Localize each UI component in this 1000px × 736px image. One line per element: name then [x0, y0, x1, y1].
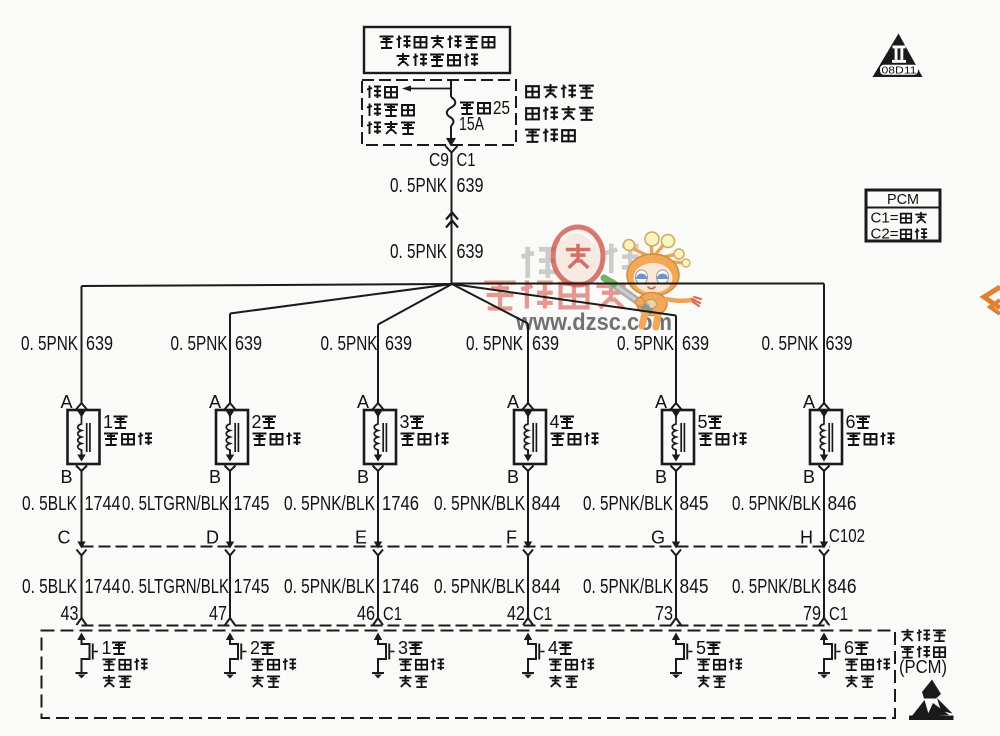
svg-text:1745: 1745	[234, 493, 270, 515]
svg-text:846: 846	[828, 576, 857, 598]
svg-text:1746: 1746	[382, 493, 419, 515]
svg-text:0. 5BLK: 0. 5BLK	[22, 576, 78, 598]
svg-text:639: 639	[826, 333, 853, 355]
svg-text:2: 2	[250, 638, 260, 658]
svg-text:1744: 1744	[85, 576, 121, 598]
svg-text:0. 5BLK: 0. 5BLK	[22, 493, 78, 515]
svg-text:D: D	[206, 528, 219, 548]
svg-text:0. 5PNK/BLK: 0. 5PNK/BLK	[583, 493, 674, 515]
svg-text:639: 639	[385, 333, 412, 355]
svg-text:08D11: 08D11	[882, 65, 918, 76]
svg-text:844: 844	[532, 493, 561, 515]
svg-text:PCM: PCM	[887, 191, 919, 208]
svg-text:C: C	[58, 528, 71, 548]
svg-text:(PCM): (PCM)	[899, 657, 947, 677]
svg-text:0. 5LTGRN/BLK: 0. 5LTGRN/BLK	[122, 493, 229, 515]
svg-text:G: G	[651, 528, 665, 548]
svg-text:B: B	[803, 467, 815, 487]
svg-text:639: 639	[682, 333, 709, 355]
svg-text:6: 6	[844, 638, 854, 658]
svg-text:47: 47	[209, 603, 227, 625]
svg-text:1: 1	[102, 638, 112, 658]
svg-text:639: 639	[457, 175, 484, 197]
svg-text:639: 639	[86, 333, 113, 355]
svg-text:6: 6	[846, 412, 856, 432]
svg-text:0. 5PNK: 0. 5PNK	[390, 175, 448, 197]
svg-text:C1: C1	[829, 604, 848, 624]
svg-text:0. 5PNK/BLK: 0. 5PNK/BLK	[732, 576, 821, 598]
svg-text:5: 5	[698, 412, 708, 432]
svg-text:0. 5PNK/BLK: 0. 5PNK/BLK	[434, 493, 526, 515]
svg-text:0. 5PNK: 0. 5PNK	[466, 333, 524, 355]
svg-text:E: E	[355, 528, 367, 548]
svg-text:B: B	[60, 467, 72, 487]
svg-text:0. 5PNK/BLK: 0. 5PNK/BLK	[583, 576, 674, 598]
svg-text:0. 5PNK/BLK: 0. 5PNK/BLK	[732, 493, 821, 515]
svg-text:2: 2	[252, 412, 262, 432]
svg-text:B: B	[507, 467, 519, 487]
svg-text:0. 5PNK/BLK: 0. 5PNK/BLK	[434, 576, 526, 598]
svg-text:4: 4	[550, 412, 560, 432]
svg-text:4: 4	[548, 638, 558, 658]
svg-text:15A: 15A	[459, 114, 484, 134]
svg-text:0. 5PNK: 0. 5PNK	[171, 333, 229, 355]
svg-text:0. 5PNK: 0. 5PNK	[617, 333, 675, 355]
svg-text:844: 844	[532, 576, 561, 598]
svg-text:1746: 1746	[382, 576, 419, 598]
svg-text:0. 5LTGRN/BLK: 0. 5LTGRN/BLK	[122, 576, 229, 598]
svg-text:B: B	[357, 467, 369, 487]
svg-text:H: H	[800, 528, 813, 548]
svg-text:5: 5	[696, 638, 706, 658]
svg-text:1745: 1745	[234, 576, 270, 598]
svg-text:845: 845	[680, 576, 709, 598]
svg-text:0. 5PNK: 0. 5PNK	[390, 241, 448, 263]
svg-text:0. 5PNK: 0. 5PNK	[21, 333, 79, 355]
svg-text:3: 3	[398, 638, 408, 658]
svg-text:846: 846	[828, 493, 857, 515]
svg-text:73: 73	[655, 603, 673, 625]
svg-text:F: F	[506, 528, 517, 548]
svg-text:639: 639	[235, 333, 262, 355]
svg-text:42: 42	[507, 603, 525, 625]
svg-text:C102: C102	[829, 526, 865, 546]
svg-text:639: 639	[457, 241, 484, 263]
svg-text:B: B	[209, 467, 221, 487]
svg-text:0. 5PNK/BLK: 0. 5PNK/BLK	[284, 493, 376, 515]
svg-text:0. 5PNK: 0. 5PNK	[762, 333, 820, 355]
svg-text:639: 639	[532, 333, 559, 355]
svg-text:3: 3	[400, 412, 410, 432]
svg-text:79: 79	[803, 603, 821, 625]
svg-text:C1: C1	[457, 150, 476, 170]
svg-text:0. 5PNK/BLK: 0. 5PNK/BLK	[284, 576, 376, 598]
svg-text:1744: 1744	[85, 493, 121, 515]
svg-text:0. 5PNK: 0. 5PNK	[321, 333, 379, 355]
svg-text:43: 43	[61, 603, 79, 625]
svg-text:1: 1	[103, 412, 113, 432]
svg-text:B: B	[655, 467, 667, 487]
svg-text:C1: C1	[533, 604, 552, 624]
svg-text:25: 25	[493, 98, 510, 118]
svg-text:46: 46	[357, 603, 375, 625]
svg-text:845: 845	[680, 493, 709, 515]
svg-text:C2=: C2=	[871, 226, 899, 243]
svg-text:C1: C1	[383, 604, 402, 624]
svg-text:C1=: C1=	[871, 210, 899, 227]
svg-text:C9: C9	[429, 150, 449, 170]
